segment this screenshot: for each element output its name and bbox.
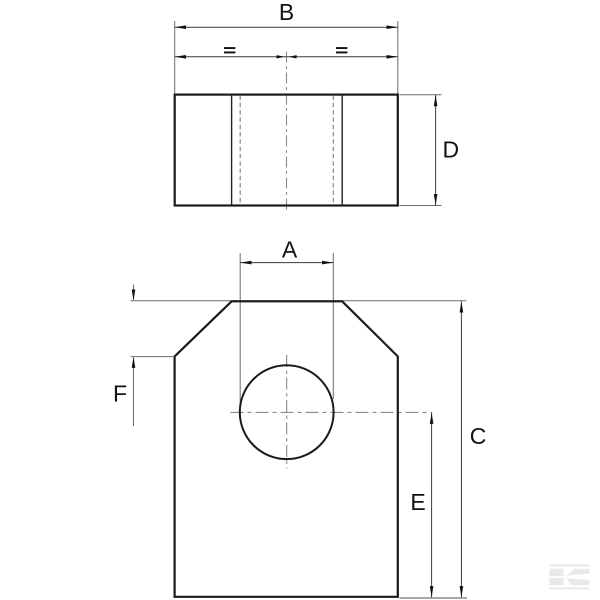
svg-text:D: D: [442, 136, 459, 162]
svg-text:B: B: [279, 0, 294, 25]
svg-text:E: E: [410, 489, 425, 515]
svg-text:A: A: [282, 237, 298, 263]
svg-text:C: C: [470, 423, 487, 449]
svg-text:F: F: [113, 381, 127, 407]
